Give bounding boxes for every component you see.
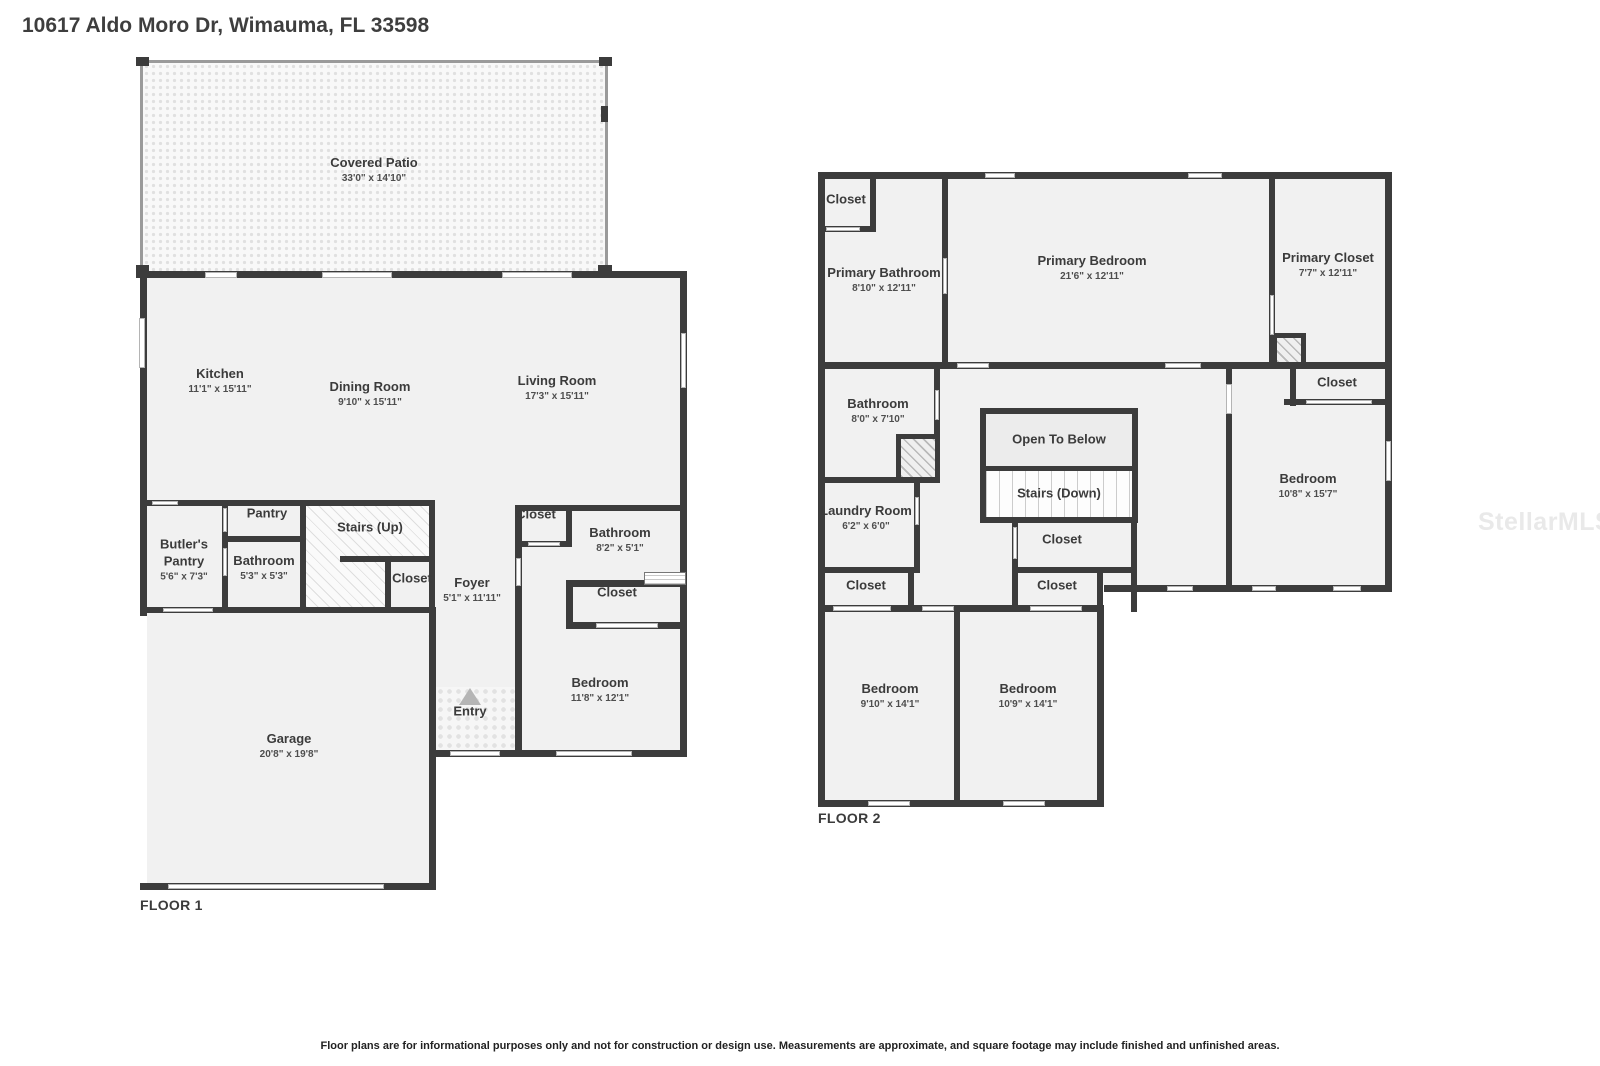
room-label-bedroom-b: Bedroom 10'9" x 14'1" <box>999 681 1058 711</box>
room-label-closet-a: Closet <box>826 192 866 209</box>
dining-room-name: Dining Room <box>330 379 411 396</box>
room-label-stairs-closet: Closet <box>392 571 432 588</box>
room-label-hall-closet-f2: Closet <box>1042 532 1082 549</box>
bathroom-f2-dims: 8'0" x 7'10" <box>847 413 908 426</box>
bedroom-a-name: Bedroom <box>861 681 920 698</box>
covered-patio-name: Covered Patio <box>330 155 417 172</box>
bathroom-1-name: Bathroom <box>233 553 294 570</box>
bathroom-2-name: Bathroom <box>589 525 650 542</box>
floor2-label: FLOOR 2 <box>818 810 881 826</box>
foyer-dims: 5'1" x 11'11" <box>443 592 501 605</box>
hall-closet-2-name: Closet <box>1037 578 1077 595</box>
kitchen-name: Kitchen <box>188 366 251 383</box>
floor1-label: FLOOR 1 <box>140 897 203 913</box>
entry-arrow-icon <box>459 688 481 705</box>
bathroom-1-dims: 5'3" x 5'3" <box>233 570 294 583</box>
butlers-pantry-dims: 5'6" x 7'3" <box>152 570 216 583</box>
primary-bedroom-name: Primary Bedroom <box>1037 253 1146 270</box>
living-room-name: Living Room <box>518 373 597 390</box>
left-closet-name: Closet <box>846 578 886 595</box>
garage-dims: 20'8" x 19'8" <box>260 748 319 761</box>
primary-bathroom-name: Primary Bathroom <box>827 265 940 282</box>
primary-closet-name: Primary Closet <box>1282 250 1374 267</box>
room-label-bedroom-closet: Closet <box>597 585 637 602</box>
stairs-up-name: Stairs (Up) <box>337 520 403 537</box>
room-label-dining-room: Dining Room 9'10" x 15'11" <box>330 379 411 409</box>
floor-plan-labels: Covered Patio 33'0" x 14'10" Kitchen 11'… <box>0 0 1600 1066</box>
stairs-closet-name: Closet <box>392 571 432 588</box>
hall-closet-name: Closet <box>516 507 556 524</box>
bedroom-b-dims: 10'9" x 14'1" <box>999 698 1058 711</box>
room-label-left-closet: Closet <box>846 578 886 595</box>
bedroom-f1-name: Bedroom <box>571 675 629 692</box>
room-label-stairs-down: Stairs (Down) <box>1017 486 1101 503</box>
open-to-below-name: Open To Below <box>1012 432 1106 449</box>
bedroom-f1-dims: 11'8" x 12'1" <box>571 692 629 705</box>
room-label-laundry-room: Laundry Room 6'2" x 6'0" <box>820 503 912 533</box>
room-label-primary-bathroom: Primary Bathroom 8'10" x 12'11" <box>827 265 940 295</box>
room-label-butlers-pantry: Butler's Pantry 5'6" x 7'3" <box>152 537 216 584</box>
bedroom-closet-name: Closet <box>597 585 637 602</box>
bathroom-f2-name: Bathroom <box>847 396 908 413</box>
room-label-bathroom-2: Bathroom 8'2" x 5'1" <box>589 525 650 555</box>
room-label-bathroom-1: Bathroom 5'3" x 5'3" <box>233 553 294 583</box>
room-label-hall-closet: Closet <box>516 507 556 524</box>
room-label-bedroom-right: Bedroom 10'8" x 15'7" <box>1279 471 1338 501</box>
room-label-bedroom-f1: Bedroom 11'8" x 12'1" <box>571 675 629 705</box>
room-label-primary-bedroom: Primary Bedroom 21'6" x 12'11" <box>1037 253 1146 283</box>
room-label-foyer: Foyer 5'1" x 11'11" <box>443 575 501 605</box>
primary-bedroom-dims: 21'6" x 12'11" <box>1037 270 1146 283</box>
room-label-bathroom-f2: Bathroom 8'0" x 7'10" <box>847 396 908 426</box>
room-label-hall-closet-2: Closet <box>1037 578 1077 595</box>
laundry-room-name: Laundry Room <box>820 503 912 520</box>
covered-patio-dims: 33'0" x 14'10" <box>330 172 417 185</box>
living-room-dims: 17'3" x 15'11" <box>518 390 597 403</box>
laundry-room-dims: 6'2" x 6'0" <box>820 520 912 533</box>
stairs-down-name: Stairs (Down) <box>1017 486 1101 503</box>
primary-bathroom-dims: 8'10" x 12'11" <box>827 282 940 295</box>
room-label-garage: Garage 20'8" x 19'8" <box>260 731 319 761</box>
kitchen-dims: 11'1" x 15'11" <box>188 383 251 396</box>
room-label-stairs-up: Stairs (Up) <box>337 520 403 537</box>
foyer-name: Foyer <box>443 575 501 592</box>
room-label-bedroom-right-closet: Closet <box>1317 375 1357 392</box>
garage-name: Garage <box>260 731 319 748</box>
room-label-living-room: Living Room 17'3" x 15'11" <box>518 373 597 403</box>
butlers-pantry-name: Butler's Pantry <box>152 537 216 571</box>
pantry-name: Pantry <box>247 506 287 523</box>
room-label-primary-closet: Primary Closet 7'7" x 12'11" <box>1282 250 1374 280</box>
dining-room-dims: 9'10" x 15'11" <box>330 396 411 409</box>
bathroom-2-dims: 8'2" x 5'1" <box>589 542 650 555</box>
floor-plan-page: 10617 Aldo Moro Dr, Wimauma, FL 33598 Co… <box>0 0 1600 1066</box>
hall-closet-f2-name: Closet <box>1042 532 1082 549</box>
bedroom-right-dims: 10'8" x 15'7" <box>1279 488 1338 501</box>
bedroom-a-dims: 9'10" x 14'1" <box>861 698 920 711</box>
bedroom-right-name: Bedroom <box>1279 471 1338 488</box>
closet-a-name: Closet <box>826 192 866 209</box>
entry-name: Entry <box>453 704 486 721</box>
primary-closet-dims: 7'7" x 12'11" <box>1282 267 1374 280</box>
room-label-open-to-below: Open To Below <box>1012 432 1106 449</box>
bedroom-right-closet-name: Closet <box>1317 375 1357 392</box>
room-label-entry: Entry <box>453 704 486 721</box>
room-label-pantry: Pantry <box>247 506 287 523</box>
room-label-kitchen: Kitchen 11'1" x 15'11" <box>188 366 251 396</box>
bedroom-b-name: Bedroom <box>999 681 1058 698</box>
room-label-bedroom-a: Bedroom 9'10" x 14'1" <box>861 681 920 711</box>
room-label-covered-patio: Covered Patio 33'0" x 14'10" <box>330 155 417 185</box>
